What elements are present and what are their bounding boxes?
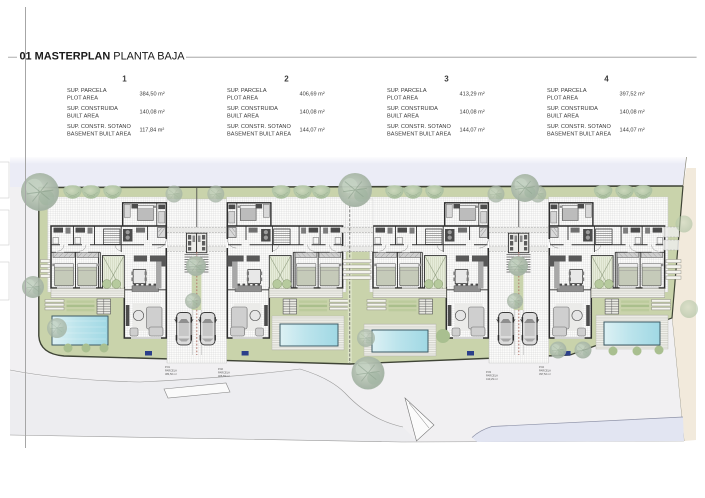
svg-text:PLOT AREA: PLOT AREA <box>67 96 98 102</box>
svg-text:BUILT AREA: BUILT AREA <box>547 113 579 119</box>
svg-text:SUP. CONSTR. SOTANO: SUP. CONSTR. SOTANO <box>67 124 131 130</box>
svg-text:413,29 m²: 413,29 m² <box>460 92 485 98</box>
svg-text:397,52 m²: 397,52 m² <box>620 92 645 98</box>
svg-text:BASEMENT BUILT AREA: BASEMENT BUILT AREA <box>67 131 131 137</box>
svg-text:384,50 m²: 384,50 m² <box>140 92 165 98</box>
svg-text:406,69 m²: 406,69 m² <box>300 92 325 98</box>
svg-text:P.04: P.04 <box>539 365 545 369</box>
svg-text:144,07 m²: 144,07 m² <box>620 127 645 133</box>
svg-text:140,08 m²: 140,08 m² <box>300 109 325 115</box>
svg-text:SUP. CONSTRUIDA: SUP. CONSTRUIDA <box>547 106 598 112</box>
svg-text:3: 3 <box>444 75 449 84</box>
svg-text:384,50 m²: 384,50 m² <box>165 372 177 376</box>
svg-text:P.02: P.02 <box>218 367 224 371</box>
svg-text:SUP. CONSTR. SOTANO: SUP. CONSTR. SOTANO <box>547 124 611 130</box>
svg-text:BUILT AREA: BUILT AREA <box>387 113 419 119</box>
svg-text:140,08 m²: 140,08 m² <box>460 109 485 115</box>
svg-text:SUP. PARCELA: SUP. PARCELA <box>547 88 587 94</box>
svg-text:140,08 m²: 140,08 m² <box>620 109 645 115</box>
svg-text:SUP. PARCELA: SUP. PARCELA <box>227 88 267 94</box>
svg-text:4: 4 <box>604 75 609 84</box>
svg-text:P.01: P.01 <box>165 365 171 369</box>
svg-text:144,07 m²: 144,07 m² <box>460 127 485 133</box>
svg-text:BASEMENT BUILT AREA: BASEMENT BUILT AREA <box>547 131 611 137</box>
svg-text:SUP. CONSTRUIDA: SUP. CONSTRUIDA <box>387 106 438 112</box>
svg-text:PLOT AREA: PLOT AREA <box>547 96 578 102</box>
svg-text:P.03: P.03 <box>486 370 492 374</box>
svg-text:BUILT AREA: BUILT AREA <box>227 113 259 119</box>
svg-text:PARCELA: PARCELA <box>165 368 177 372</box>
svg-text:BASEMENT BUILT AREA: BASEMENT BUILT AREA <box>387 131 451 137</box>
svg-text:BASEMENT BUILT AREA: BASEMENT BUILT AREA <box>227 131 291 137</box>
svg-text:144,07 m²: 144,07 m² <box>300 127 325 133</box>
svg-text:PARCELA: PARCELA <box>539 368 551 372</box>
svg-text:01 MASTERPLAN PLANTA BAJA: 01 MASTERPLAN PLANTA BAJA <box>20 51 186 63</box>
svg-text:397,52 m²: 397,52 m² <box>539 372 551 376</box>
svg-text:PLOT AREA: PLOT AREA <box>227 96 258 102</box>
svg-text:SUP. CONSTRUIDA: SUP. CONSTRUIDA <box>227 106 278 112</box>
svg-text:SUP. CONSTR. SOTANO: SUP. CONSTR. SOTANO <box>227 124 291 130</box>
svg-text:140,08 m²: 140,08 m² <box>140 109 165 115</box>
svg-text:PARCELA: PARCELA <box>486 373 498 377</box>
svg-text:PLOT AREA: PLOT AREA <box>387 96 418 102</box>
svg-text:SUP. CONSTR. SOTANO: SUP. CONSTR. SOTANO <box>387 124 451 130</box>
svg-text:406,69 m²: 406,69 m² <box>218 374 230 378</box>
svg-text:2: 2 <box>284 75 289 84</box>
svg-text:SUP. PARCELA: SUP. PARCELA <box>67 88 107 94</box>
svg-text:SUP. PARCELA: SUP. PARCELA <box>387 88 427 94</box>
svg-text:413,29 m²: 413,29 m² <box>486 377 498 381</box>
svg-text:1: 1 <box>122 75 127 84</box>
svg-text:BUILT AREA: BUILT AREA <box>67 113 99 119</box>
svg-text:SUP. CONSTRUIDA: SUP. CONSTRUIDA <box>67 106 118 112</box>
svg-text:117,84 m²: 117,84 m² <box>140 127 165 133</box>
svg-text:PARCELA: PARCELA <box>218 370 230 374</box>
